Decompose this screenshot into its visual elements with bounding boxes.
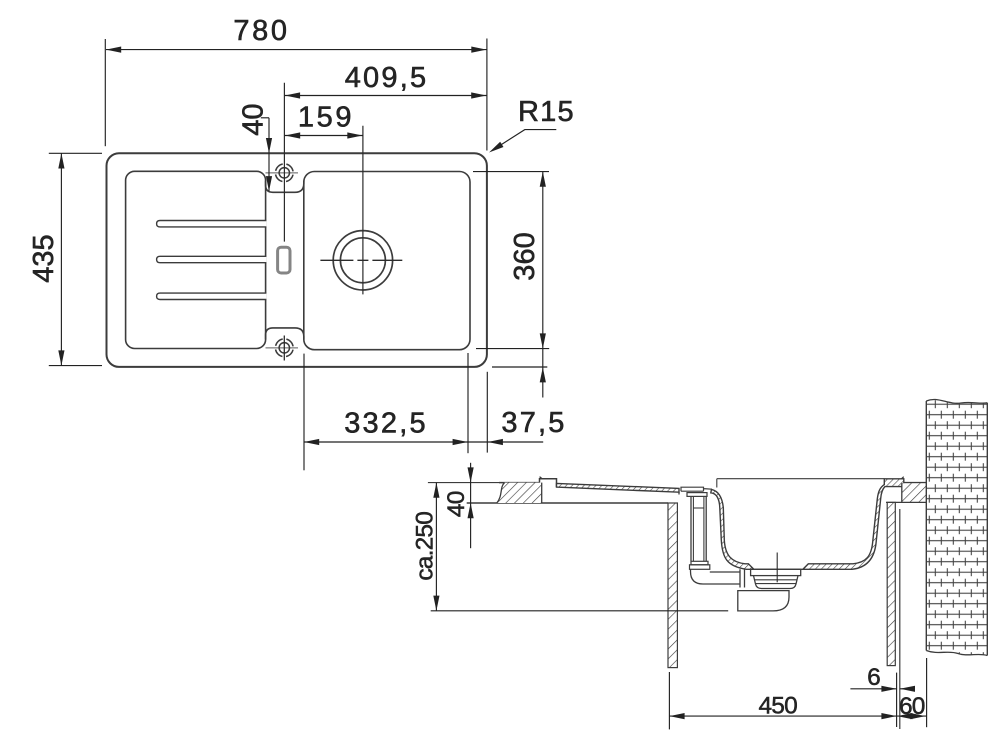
svg-text:450: 450 [758,693,797,720]
svg-text:409,5: 409,5 [345,62,429,94]
svg-text:332,5: 332,5 [344,408,428,440]
svg-text:40: 40 [237,103,269,135]
svg-text:R15: R15 [518,96,575,128]
svg-text:159: 159 [298,102,354,134]
svg-text:37,5: 37,5 [501,407,566,439]
svg-text:435: 435 [28,234,60,282]
svg-text:780: 780 [233,15,289,47]
svg-text:60: 60 [899,693,925,720]
svg-text:360: 360 [509,232,541,280]
svg-text:ca.250: ca.250 [411,512,438,581]
svg-text:6: 6 [867,664,880,691]
svg-text:40: 40 [443,491,470,517]
